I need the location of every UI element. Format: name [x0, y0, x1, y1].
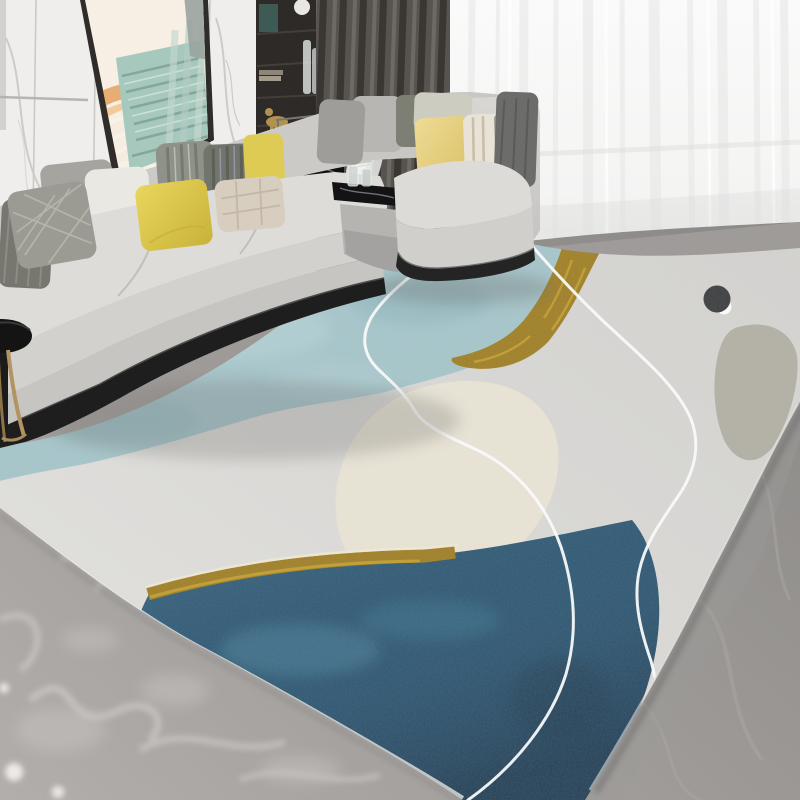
- cabinet-book-2: [259, 76, 281, 81]
- pillow-crosshatch-silver: [6, 180, 98, 271]
- pillow-corner-gray: [316, 99, 365, 165]
- cabinet-book: [259, 70, 283, 75]
- cabinet-glass-vase: [303, 40, 311, 94]
- pillow-beige-quilt: [214, 175, 286, 233]
- rug-dark-dot: [704, 286, 731, 313]
- glass-cup: [348, 166, 358, 186]
- wall-edge-shadow: [0, 0, 6, 130]
- pillow-yellow-left: [134, 178, 214, 252]
- living-room-photo: [0, 0, 800, 800]
- glass-cup-2: [362, 169, 371, 186]
- cabinet-teal-books: [259, 4, 278, 32]
- sofa-chaise: [394, 161, 535, 281]
